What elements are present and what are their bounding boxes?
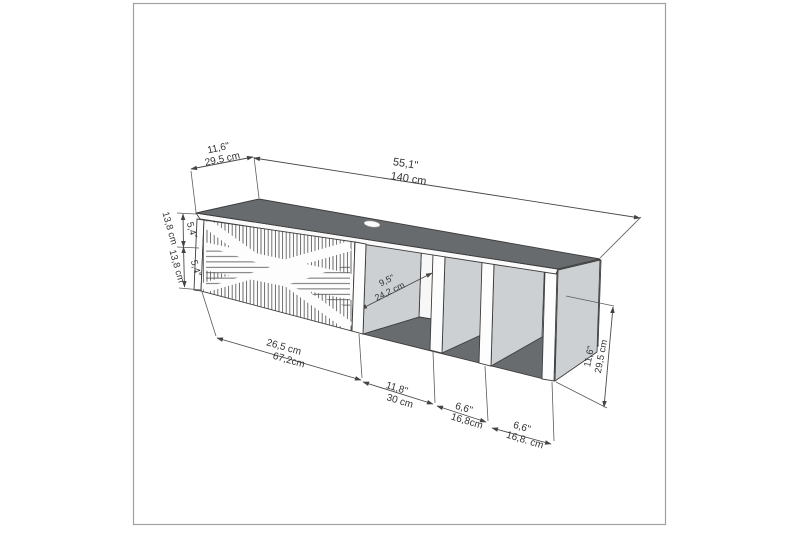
page: 9,5" 24,2 cm [0, 0, 800, 533]
furniture-dimension-drawing: 9,5" 24,2 cm [0, 0, 800, 533]
divider-c-front [479, 261, 494, 366]
divider-a-front [352, 242, 366, 334]
right-panel-front [542, 270, 557, 381]
divider-b-front [430, 254, 445, 353]
